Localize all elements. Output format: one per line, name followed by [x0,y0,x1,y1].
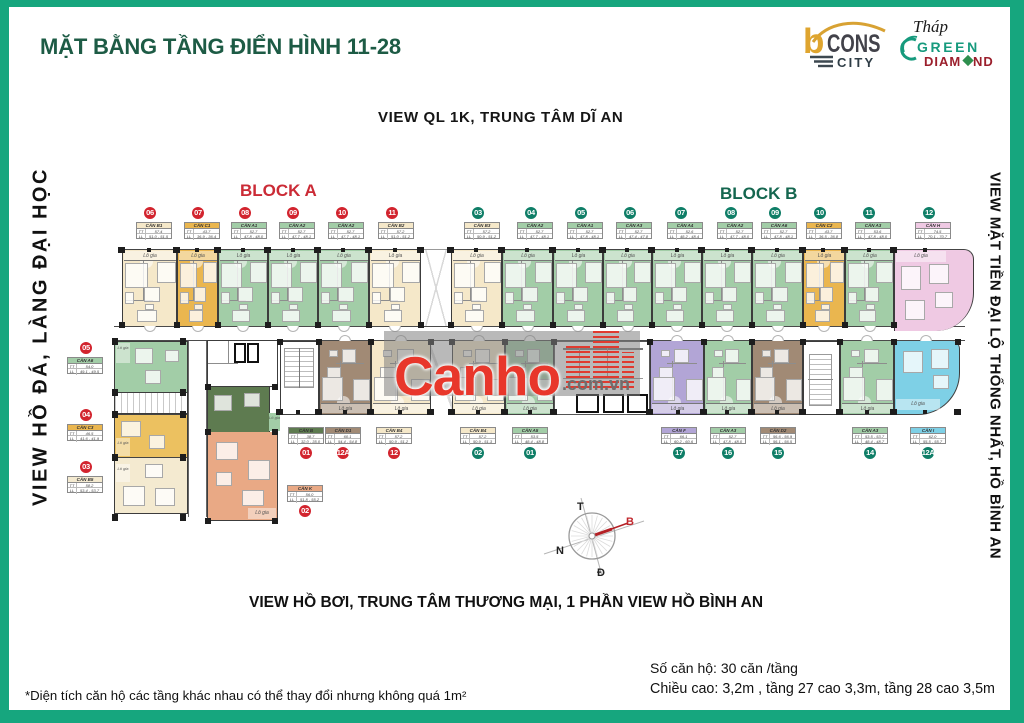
svg-text:Đ: Đ [597,567,605,579]
svg-text:b: b [803,22,824,61]
svg-text:DIAM: DIAM [924,54,961,69]
svg-text:N: N [556,545,564,557]
svg-text:B: B [626,516,634,528]
svg-text:T: T [577,501,584,513]
svg-text:GREEN: GREEN [917,39,980,55]
svg-text:Tháp: Tháp [913,17,948,36]
svg-text:CONS: CONS [827,29,880,57]
svg-text:ND: ND [973,54,994,69]
svg-text:CITY: CITY [837,55,875,70]
